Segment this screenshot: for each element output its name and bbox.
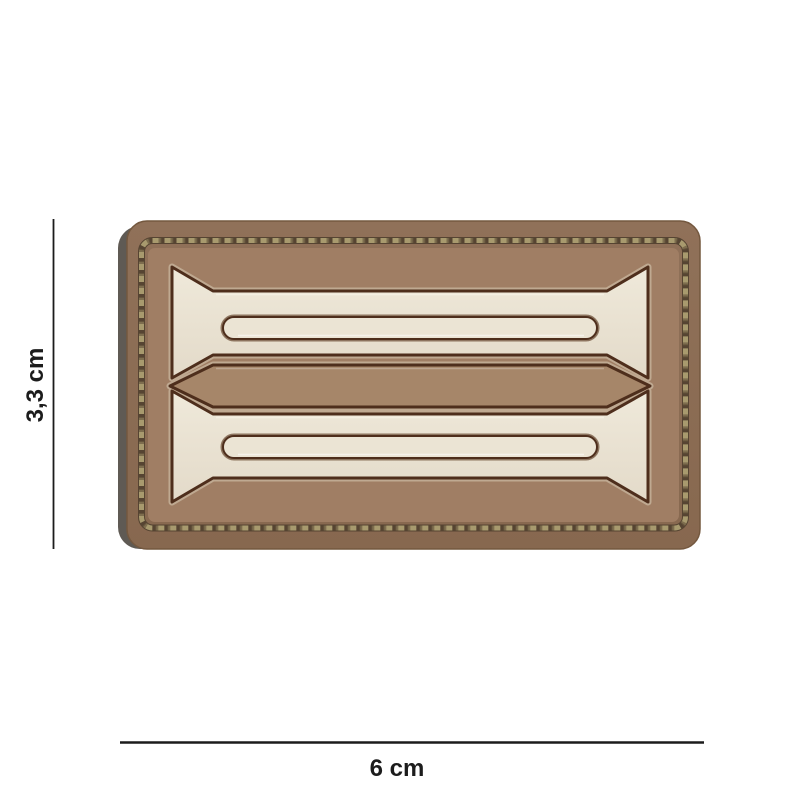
height-dimension-label: 3,3 cm <box>22 348 50 423</box>
patch-illustration <box>0 0 800 800</box>
slot-top <box>223 317 597 339</box>
middle-band <box>170 365 650 407</box>
product-image-canvas: 3,3 cm 6 cm <box>0 0 800 800</box>
slot-bottom <box>223 436 597 458</box>
width-dimension-label: 6 cm <box>370 755 425 783</box>
